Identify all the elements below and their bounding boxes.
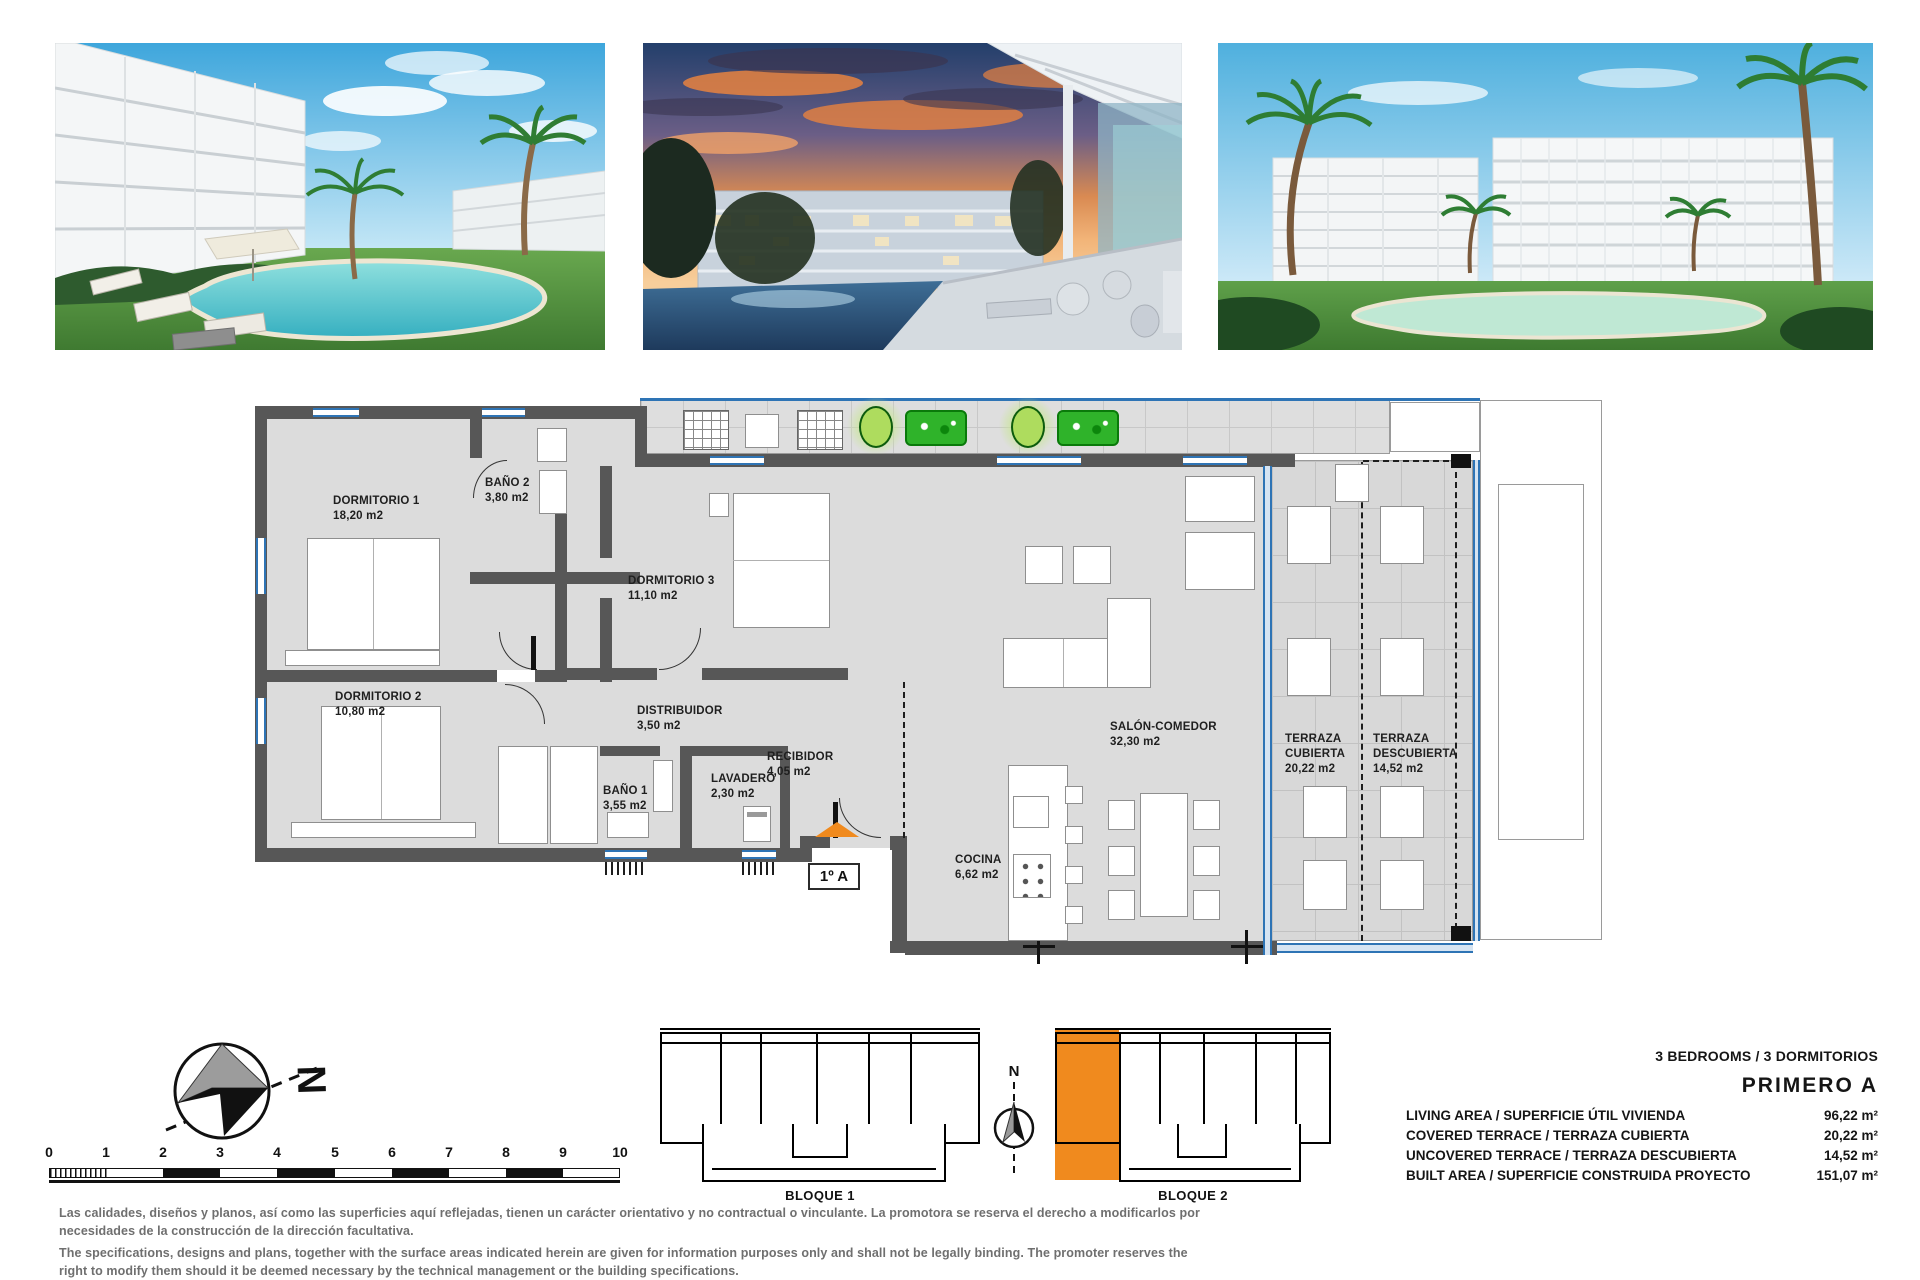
kitchen-hob-icon bbox=[1013, 854, 1051, 898]
scale-bar-segment bbox=[163, 1169, 220, 1177]
wall bbox=[567, 668, 657, 680]
room-label-dormitorio-2: DORMITORIO 210,80 m2 bbox=[335, 690, 422, 720]
wall bbox=[600, 746, 660, 756]
sofa-chaise-icon bbox=[1107, 598, 1151, 688]
bed-bench-icon bbox=[285, 650, 440, 666]
spec-row-value: 14,52 m² bbox=[1758, 1148, 1878, 1163]
terrace-table-icon bbox=[797, 410, 843, 450]
window bbox=[256, 538, 266, 594]
scale-tick: 4 bbox=[273, 1144, 281, 1160]
chair-icon bbox=[1193, 890, 1220, 920]
scale-tick: 9 bbox=[559, 1144, 567, 1160]
door-leaf bbox=[531, 636, 536, 670]
compass-icon: N bbox=[158, 1028, 338, 1156]
stool-icon bbox=[1065, 866, 1083, 884]
vent-grille-icon bbox=[742, 862, 776, 875]
room-label-salon-comedor: SALÓN-COMEDOR32,30 m2 bbox=[1110, 720, 1217, 750]
photo-building-pool-day-illustration bbox=[1218, 43, 1873, 350]
column-marker-icon bbox=[1023, 945, 1055, 948]
plant-pot-icon bbox=[859, 406, 893, 448]
lounger-icon bbox=[1380, 638, 1424, 696]
scale-tick: 1 bbox=[102, 1144, 110, 1160]
photo-pool-garden-day bbox=[55, 43, 605, 350]
compass: N bbox=[158, 1028, 338, 1156]
window bbox=[313, 408, 359, 417]
scale-bar-hatch-segment bbox=[50, 1169, 107, 1177]
armchair-icon bbox=[1073, 546, 1111, 584]
room-label-terraza-descubierta: TERRAZA DESCUBIERTA14,52 m2 bbox=[1373, 732, 1451, 778]
keyplan-compass: N bbox=[990, 1062, 1038, 1182]
chair-icon bbox=[1193, 846, 1220, 876]
room-label-bano-2: BAÑO 23,80 m2 bbox=[485, 476, 530, 506]
terrace-stool-icon bbox=[745, 414, 779, 448]
room-label-dormitorio-3: DORMITORIO 311,10 m2 bbox=[628, 574, 715, 604]
window bbox=[742, 850, 776, 859]
disclaimer-line-es-1: Las calidades, diseños y planos, así com… bbox=[59, 1206, 1200, 1220]
upper-terrace-glass-rail bbox=[640, 398, 1480, 401]
entrance-marker-icon bbox=[815, 822, 859, 837]
window bbox=[710, 456, 764, 465]
scale-bar-baseline bbox=[49, 1180, 620, 1183]
lounger-icon bbox=[1287, 506, 1331, 564]
spec-row-label: LIVING AREA / SUPERFICIE ÚTIL VIVIENDA bbox=[1406, 1108, 1766, 1123]
vent-grille-icon bbox=[605, 862, 647, 875]
bed-split-line bbox=[733, 560, 829, 561]
terrace-glass-wall bbox=[1473, 460, 1480, 941]
sofa-split-line bbox=[1063, 639, 1064, 687]
dining-table-icon bbox=[1140, 793, 1188, 917]
spec-block: 3 BEDROOMS / 3 DORMITORIOS PRIMERO A LIV… bbox=[1370, 1048, 1878, 1188]
bath-fixture-icon bbox=[539, 470, 567, 514]
keyplan-north-label: N bbox=[1009, 1063, 1020, 1080]
keyplan-block-2: BLOQUE 2 bbox=[1055, 1028, 1331, 1206]
keyplan-compass-icon: N bbox=[990, 1062, 1038, 1182]
wall bbox=[702, 668, 848, 680]
photo-pool-garden-day-illustration bbox=[55, 43, 605, 350]
lounger-icon bbox=[1380, 860, 1424, 910]
wall bbox=[800, 836, 812, 862]
tv-unit-icon bbox=[1185, 476, 1255, 522]
bath-fixture-icon bbox=[653, 760, 673, 812]
wall bbox=[905, 941, 1277, 955]
room-label-terraza-cubierta: TERRAZA CUBIERTA20,22 m2 bbox=[1285, 732, 1363, 778]
wall bbox=[555, 498, 567, 682]
unit-label-box: 1º A bbox=[808, 863, 860, 890]
wall bbox=[470, 406, 482, 458]
keyplan-block-1: BLOQUE 1 bbox=[660, 1028, 980, 1206]
spec-row-label: UNCOVERED TERRACE / TERRAZA DESCUBIERTA bbox=[1406, 1148, 1766, 1163]
terrace-chair-icon bbox=[1335, 464, 1369, 502]
window bbox=[605, 850, 647, 859]
spec-row-value: 151,07 m² bbox=[1758, 1168, 1878, 1183]
washing-machine-detail bbox=[747, 812, 767, 817]
bed-split-line bbox=[381, 707, 382, 819]
scale-tick: 10 bbox=[612, 1144, 628, 1160]
plant-pot-icon bbox=[1011, 406, 1045, 448]
spec-row-label: BUILT AREA / SUPERFICIE CONSTRUIDA PROYE… bbox=[1406, 1168, 1766, 1183]
room-label-bano-1: BAÑO 13,55 m2 bbox=[603, 784, 648, 814]
window bbox=[479, 408, 525, 417]
window bbox=[997, 456, 1081, 465]
terrace-projection-dashed bbox=[1455, 462, 1457, 939]
stool-icon bbox=[1065, 786, 1083, 804]
scale-tick: 5 bbox=[331, 1144, 339, 1160]
scale-bar-segment bbox=[277, 1169, 335, 1177]
window bbox=[1183, 456, 1247, 465]
wall bbox=[470, 572, 640, 584]
tv-unit-icon bbox=[1185, 532, 1255, 590]
scale-bar-segment bbox=[392, 1169, 449, 1177]
lounger-icon bbox=[1380, 506, 1424, 564]
column-marker-icon bbox=[1231, 945, 1263, 948]
spec-row-value: 20,22 m² bbox=[1758, 1128, 1878, 1143]
planter-hedge-icon bbox=[905, 410, 967, 446]
scale-tick: 7 bbox=[445, 1144, 453, 1160]
chair-icon bbox=[1108, 800, 1135, 830]
terrace-projection-dashed-top bbox=[1363, 460, 1459, 462]
bath-fixture-icon bbox=[607, 812, 649, 838]
bedrooms-header: 3 BEDROOMS / 3 DORMITORIOS bbox=[1370, 1048, 1878, 1064]
bed-bench-icon bbox=[291, 822, 476, 838]
room-label-dormitorio-1: DORMITORIO 118,20 m2 bbox=[333, 494, 420, 524]
armchair-icon bbox=[1025, 546, 1063, 584]
terrace-upper-outline bbox=[1390, 402, 1480, 452]
building-inner-outline bbox=[1498, 484, 1584, 840]
block-2-label: BLOQUE 2 bbox=[1055, 1188, 1331, 1203]
wall bbox=[600, 466, 612, 558]
brochure-page: 1º A DORMITORIO 118,20 m2 BAÑO 23,80 m2 … bbox=[0, 0, 1920, 1280]
bath-fixture-icon bbox=[537, 428, 567, 462]
scale-tick: 3 bbox=[216, 1144, 224, 1160]
planter-hedge-icon bbox=[1057, 410, 1119, 446]
chair-icon bbox=[1193, 800, 1220, 830]
window bbox=[256, 698, 266, 744]
wall bbox=[680, 746, 692, 848]
lounger-icon bbox=[1303, 786, 1347, 838]
livingroom-glass-wall bbox=[1263, 466, 1272, 955]
scale-tick: 8 bbox=[502, 1144, 510, 1160]
room-label-lavadero: LAVADERO2,30 m2 bbox=[711, 772, 775, 802]
nightstand-icon bbox=[709, 493, 729, 517]
floor-plan: 1º A DORMITORIO 118,20 m2 BAÑO 23,80 m2 … bbox=[255, 398, 1610, 975]
room-label-distribuidor: DISTRIBUIDOR3,50 m2 bbox=[637, 704, 722, 734]
wall bbox=[890, 836, 907, 953]
room-label-cocina: COCINA6,62 m2 bbox=[955, 853, 1002, 883]
terrace-divider-dashed bbox=[1361, 462, 1363, 941]
chair-icon bbox=[1108, 890, 1135, 920]
wall bbox=[255, 848, 800, 862]
photo-terrace-sunset-illustration bbox=[643, 43, 1182, 350]
scale-tick: 6 bbox=[388, 1144, 396, 1160]
kitchen-sink-icon bbox=[1013, 796, 1049, 828]
unit-label: 1º A bbox=[820, 868, 848, 885]
wardrobe-icon bbox=[498, 746, 548, 844]
wall bbox=[267, 670, 497, 682]
photo-building-pool-day bbox=[1218, 43, 1873, 350]
photo-terrace-sunset bbox=[643, 43, 1182, 350]
block-1-label: BLOQUE 1 bbox=[660, 1188, 980, 1203]
scale-tick: 2 bbox=[159, 1144, 167, 1160]
lounger-icon bbox=[1287, 638, 1331, 696]
terrace-corner-post bbox=[1451, 454, 1471, 468]
spec-row-value: 96,22 m² bbox=[1758, 1108, 1878, 1123]
wall bbox=[255, 406, 267, 862]
stool-icon bbox=[1065, 826, 1083, 844]
bed-split-line bbox=[373, 539, 374, 649]
terrace-corner-post bbox=[1451, 926, 1471, 941]
terrace-table-icon bbox=[683, 410, 729, 450]
hall-living-divider-dashed bbox=[903, 682, 905, 838]
scale-tick: 0 bbox=[45, 1144, 53, 1160]
unit-name: PRIMERO A bbox=[1370, 1074, 1878, 1098]
terrace-glass-rail bbox=[1277, 943, 1473, 953]
spec-row-label: COVERED TERRACE / TERRAZA CUBIERTA bbox=[1406, 1128, 1766, 1143]
kitchen-island-icon bbox=[1008, 765, 1068, 941]
stool-icon bbox=[1065, 906, 1083, 924]
room-label-recibidor: RECIBIDOR4,05 m2 bbox=[767, 750, 833, 780]
disclaimer-line-es-2: necesidades de la construcción de la dir… bbox=[59, 1224, 414, 1238]
disclaimer-line-en-2: right to modify them should it be deemed… bbox=[59, 1264, 739, 1278]
scale-bar: 0 1 2 3 4 5 6 7 8 9 10 bbox=[46, 1144, 626, 1190]
disclaimer-line-en-1: The specifications, designs and plans, t… bbox=[59, 1246, 1188, 1260]
chair-icon bbox=[1108, 846, 1135, 876]
wardrobe-icon bbox=[550, 746, 598, 844]
compass-north-label: N bbox=[289, 1065, 334, 1095]
scale-bar-segment bbox=[506, 1169, 563, 1177]
lounger-icon bbox=[1380, 786, 1424, 838]
lounger-icon bbox=[1303, 860, 1347, 910]
